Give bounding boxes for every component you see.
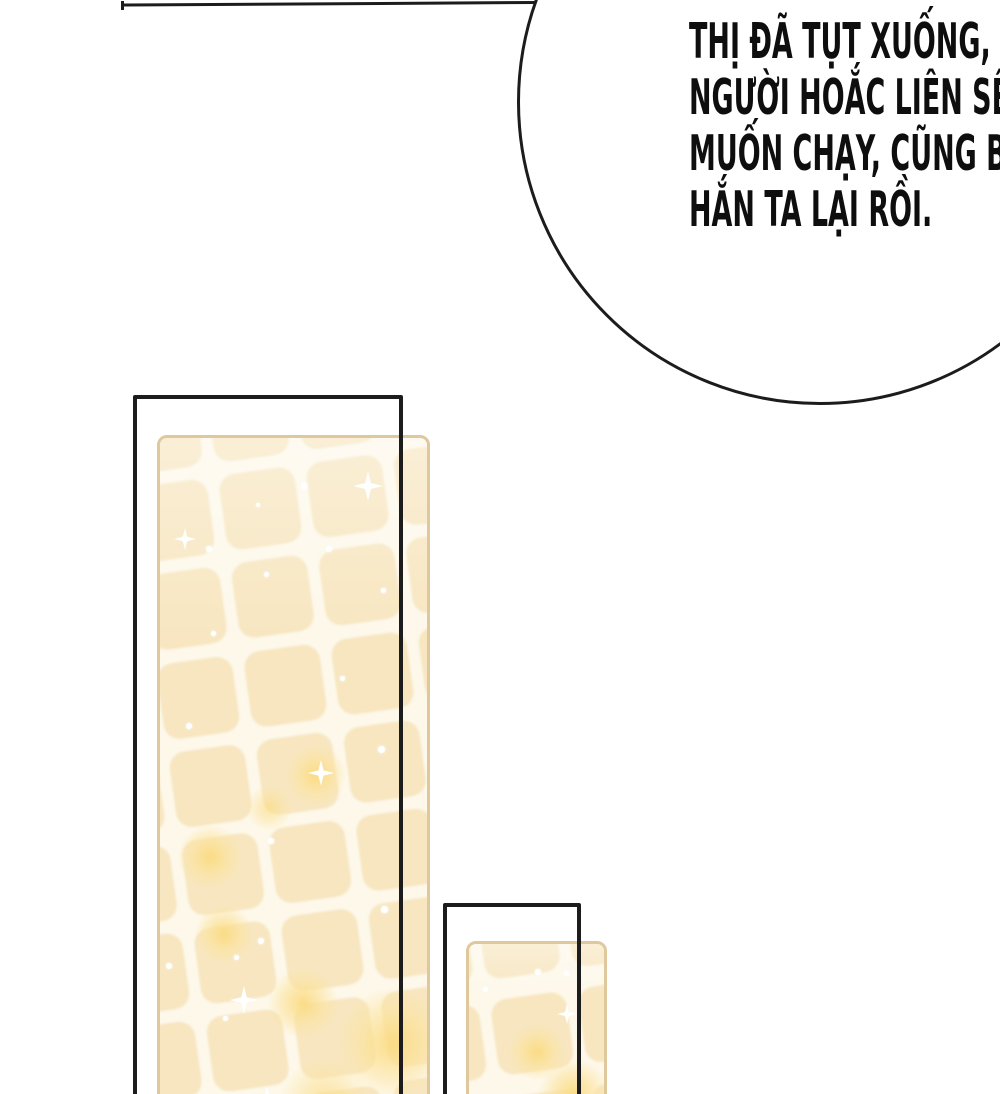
building-frame-small bbox=[443, 903, 581, 1094]
panel-edge-line bbox=[122, 1, 536, 7]
window-tile bbox=[404, 530, 430, 616]
comic-page: THỊ ĐÃ TỤT XUỐNG, CON NGƯỜI HOẮC LIÊN SÊ… bbox=[0, 0, 1000, 1094]
speech-bubble-line: MUỐN CHẠY, CŨNG BẮT bbox=[689, 126, 931, 182]
speech-bubble-line: NGƯỜI HOẮC LIÊN SÊNH bbox=[689, 70, 931, 126]
panel-edge-tick bbox=[121, 1, 124, 10]
building-frame-large bbox=[133, 395, 403, 1094]
window-tile bbox=[417, 618, 430, 704]
speech-bubble-text: THỊ ĐÃ TỤT XUỐNG, CON NGƯỜI HOẮC LIÊN SÊ… bbox=[590, 14, 1000, 238]
window-tile bbox=[429, 706, 430, 792]
window-tile bbox=[577, 979, 607, 1065]
speech-bubble-line: HẮN TA LẠI RỒI. bbox=[689, 182, 931, 238]
speech-bubble-line: THỊ ĐÃ TỤT XUỐNG, CON bbox=[689, 14, 931, 70]
